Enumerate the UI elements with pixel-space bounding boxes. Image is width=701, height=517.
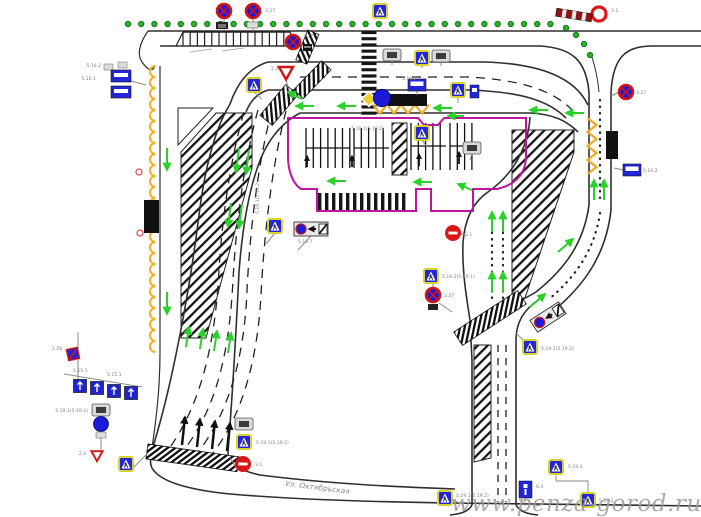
pedestrian-fence [176, 32, 297, 46]
traffic-scheme-page: 3.27 3.1 2.4 3.27 5.19.1(5.19.2) 5.15.7 … [0, 0, 701, 517]
sign-label: 5.15.1 [107, 372, 122, 378]
sign-label: 5.16.2 [86, 63, 101, 69]
no-stopping-sign [286, 35, 300, 49]
pedestrian-crossing-sign [415, 126, 429, 140]
route-plate-sign [92, 404, 110, 416]
no-stopping-sign [619, 85, 633, 99]
traffic-organization-scheme: 3.27 3.1 2.4 3.27 5.19.1(5.19.2) 5.15.7 … [0, 0, 701, 517]
pedestrian-crossing-sign [237, 435, 251, 449]
pedestrian-crossing-sign [119, 457, 133, 471]
sign-label: 3.27 [265, 8, 275, 14]
sign-label: 3.27 [636, 90, 646, 96]
sign-label: 5.19.1 [568, 464, 583, 470]
bus-platform-east [606, 131, 618, 159]
yield-sign [279, 67, 293, 80]
mandatory-direction-sign [373, 89, 390, 106]
no-stopping-sign [246, 4, 260, 18]
pedestrian-crossing-sign [247, 78, 261, 92]
sign-label: 5.16.2 [643, 168, 658, 174]
pedestrian-ladder-lower [294, 61, 331, 99]
sign-label: 5.19.2(5.19.1) [442, 274, 475, 280]
sign-label: 3.28 [52, 346, 62, 352]
traffic-signs [66, 4, 641, 507]
bus-platform-west [144, 200, 159, 233]
yield-sign [91, 451, 102, 461]
sign-label: 5.15.7 [298, 239, 313, 245]
barrier-bar [556, 8, 593, 22]
red-marker-glyph [136, 169, 142, 175]
south-median-island [474, 345, 491, 462]
sign-poles [64, 19, 624, 506]
watermark: www.penza-gorod.ru [451, 491, 701, 517]
route-plate-sign [432, 50, 450, 62]
sign-label: 3.27 [444, 293, 454, 299]
route-plate-sign [235, 418, 253, 430]
sign-plate [247, 22, 258, 28]
sign-label: 6.4 [536, 484, 543, 490]
no-entry-sign [445, 225, 461, 241]
pedestrian-crossing-sign [268, 219, 282, 233]
no-parking-sign [66, 347, 79, 360]
sign-label: 5.19.1(5.19.2) [351, 126, 384, 132]
sign-label: 5.16.2 [402, 76, 417, 82]
pedestrian-crossing-sign [424, 269, 438, 283]
sign-label: 5.19.1(5.19.2) [541, 346, 574, 352]
sign-label: 5.19.1(5.19.2) [256, 440, 289, 446]
pedestrian-crossing-sign [523, 340, 537, 354]
tree-line [125, 21, 592, 57]
sign-label: 5.15.1 [73, 368, 88, 374]
bus-stop-sign-stack [104, 62, 131, 98]
sign-label: 3.1 [611, 8, 618, 14]
lane-control-sign [91, 382, 104, 395]
mandatory-direction-sign [94, 417, 109, 432]
bus-platform-center [388, 94, 427, 106]
pedestrian-crossing-sign [373, 4, 387, 18]
sign-label: 3.1 [255, 462, 262, 468]
sign-plate [96, 432, 106, 438]
route-plate-sign [383, 49, 401, 61]
red-marker-glyph [137, 230, 143, 236]
no-stopping-sign [426, 288, 440, 302]
sign-label: 3.1 [465, 232, 472, 238]
sign-label: 2.4 [271, 66, 278, 72]
crosswalk-west-bottom [146, 444, 239, 472]
lane-control-sign [125, 387, 138, 400]
lane-direction-panel [530, 302, 566, 332]
lane-control-sign [74, 380, 87, 393]
crosswalk-parking [318, 193, 405, 210]
pedestrian-crossing-sign [451, 83, 465, 97]
parking-inner-island [392, 123, 407, 175]
sign-label: 5.19.1(5.19.2) [55, 408, 88, 414]
sign-label: 5.19.1(5.19.2) [255, 181, 261, 214]
sign-label: 3.27 [303, 34, 313, 40]
pedestrian-crossing-sign [415, 51, 429, 65]
direction-plate [428, 304, 438, 310]
sign-label: 5.16.1 [81, 76, 96, 82]
direction-plate [216, 22, 228, 29]
no-stopping-sign [217, 4, 231, 18]
no-stopping-ring-sign [592, 7, 606, 21]
route-plate-sign [463, 142, 481, 154]
sign-label: 2.4 [79, 451, 86, 457]
right-hatched-island [512, 130, 574, 298]
lane-control-sign [108, 385, 121, 398]
no-entry-sign [235, 456, 251, 472]
pedestrian-crossing-sign [438, 491, 452, 505]
pedestrian-crossing-sign [549, 460, 563, 474]
lane-direction-panel [294, 222, 328, 236]
bus-stop-sign [623, 164, 641, 176]
